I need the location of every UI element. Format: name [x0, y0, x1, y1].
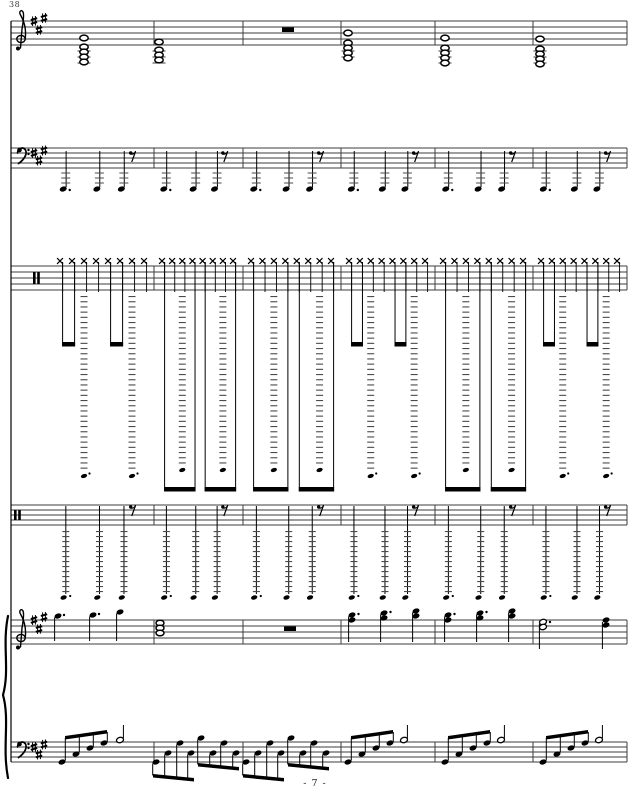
piano-bass-notes [58, 725, 603, 782]
piano-brace [3, 616, 8, 778]
ensemble-bass-notes [59, 151, 610, 192]
score-svg [0, 0, 630, 792]
drums-upper-notes [57, 258, 619, 491]
piano-treble-notes [54, 608, 610, 649]
staff-systems [11, 11, 627, 762]
sheet-music-page: 38 - 7 - [0, 0, 630, 792]
